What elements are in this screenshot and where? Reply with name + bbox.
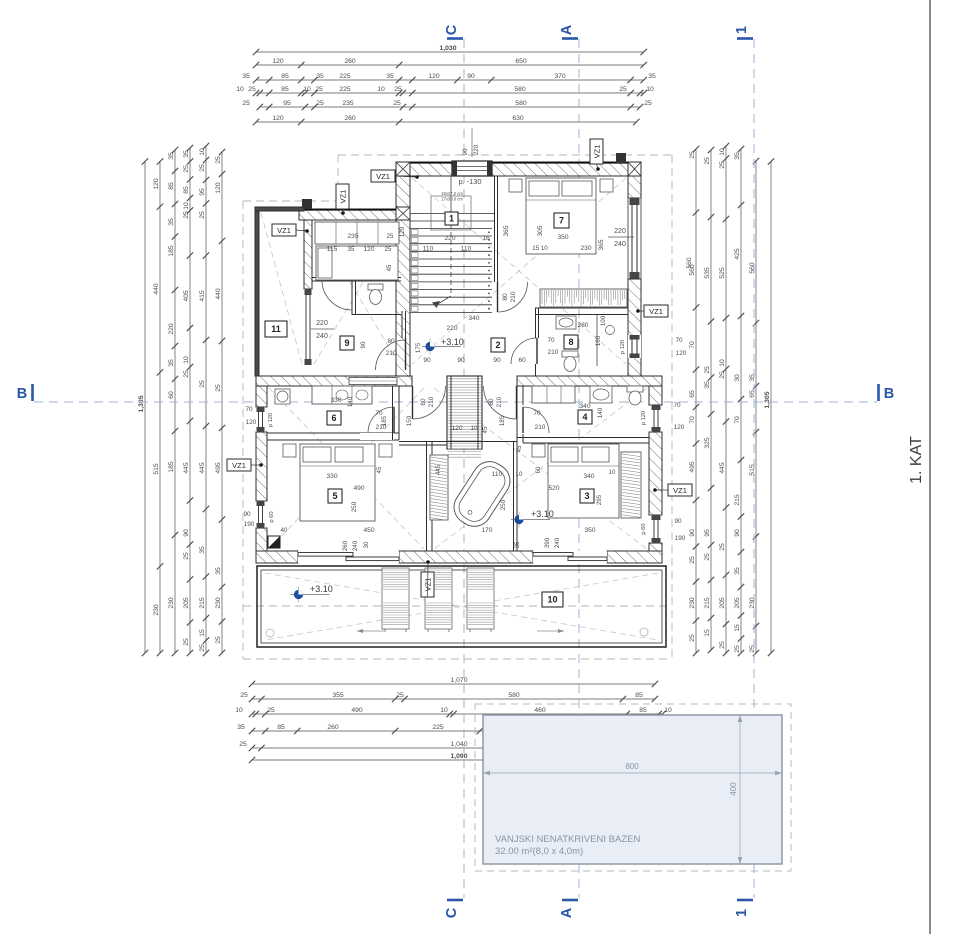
svg-text:495: 495: [689, 461, 696, 473]
svg-text:11: 11: [271, 324, 281, 334]
svg-text:120: 120: [215, 182, 222, 194]
svg-text:95: 95: [283, 100, 291, 107]
svg-text:440: 440: [215, 288, 222, 300]
svg-text:25: 25: [734, 645, 741, 653]
svg-text:215: 215: [199, 597, 206, 609]
svg-text:235: 235: [342, 100, 354, 107]
svg-text:225: 225: [432, 724, 444, 731]
svg-text:240: 240: [554, 537, 561, 548]
svg-text:185: 185: [381, 415, 388, 426]
svg-text:220: 220: [446, 325, 457, 332]
svg-text:210: 210: [496, 396, 503, 407]
svg-text:B: B: [17, 386, 27, 402]
svg-text:10: 10: [516, 471, 523, 478]
svg-text:90: 90: [689, 529, 696, 537]
svg-text:25: 25: [719, 641, 726, 649]
svg-text:VZ1: VZ1: [593, 145, 602, 159]
svg-text:25: 25: [183, 552, 190, 560]
svg-text:35: 35: [168, 218, 175, 226]
svg-text:10: 10: [471, 425, 478, 432]
svg-text:445: 445: [183, 462, 190, 474]
svg-text:630: 630: [512, 115, 524, 122]
svg-text:185: 185: [168, 461, 175, 473]
svg-text:60: 60: [168, 391, 175, 399]
svg-text:90: 90: [457, 357, 465, 364]
svg-text:205: 205: [183, 597, 190, 609]
svg-text:60: 60: [518, 357, 526, 364]
svg-text:85: 85: [281, 73, 289, 80]
svg-text:445: 445: [435, 464, 442, 475]
svg-text:4: 4: [582, 412, 587, 422]
svg-text:560: 560: [749, 262, 756, 274]
svg-text:A: A: [559, 24, 575, 35]
svg-text:25: 25: [385, 246, 392, 253]
svg-text:85: 85: [281, 86, 289, 93]
svg-text:225: 225: [339, 73, 351, 80]
svg-text:10: 10: [303, 86, 311, 93]
svg-text:120: 120: [246, 419, 257, 426]
svg-text:260: 260: [342, 540, 349, 551]
svg-text:160: 160: [595, 335, 602, 346]
svg-text:5: 5: [332, 491, 337, 501]
svg-text:25: 25: [183, 370, 190, 378]
svg-text:70: 70: [689, 341, 696, 349]
svg-text:25: 25: [267, 707, 275, 714]
svg-text:90: 90: [493, 357, 501, 364]
svg-text:1: 1: [449, 214, 454, 224]
svg-text:340: 340: [468, 315, 479, 322]
svg-text:8: 8: [568, 337, 573, 347]
svg-text:120: 120: [399, 226, 406, 237]
svg-text:1,305: 1,305: [764, 391, 771, 408]
svg-text:10: 10: [719, 148, 726, 156]
svg-text:120: 120: [272, 115, 284, 122]
svg-text:10: 10: [235, 707, 243, 714]
svg-text:1. KAT: 1. KAT: [908, 436, 925, 484]
svg-text:VZ1: VZ1: [649, 307, 663, 316]
svg-text:25: 25: [719, 371, 726, 379]
svg-text:305: 305: [537, 225, 544, 236]
svg-text:10: 10: [609, 470, 616, 476]
svg-text:17x30,0 cm: 17x30,0 cm: [441, 197, 463, 202]
svg-text:1,070: 1,070: [450, 677, 467, 684]
svg-text:70: 70: [673, 402, 681, 409]
svg-text:210: 210: [386, 350, 397, 357]
svg-text:80: 80: [387, 338, 395, 345]
svg-text:25: 25: [316, 100, 324, 107]
svg-text:25: 25: [199, 380, 206, 388]
svg-text:230: 230: [215, 597, 222, 609]
svg-text:25: 25: [248, 86, 256, 93]
svg-text:10: 10: [440, 707, 448, 714]
svg-text:35: 35: [199, 546, 206, 554]
svg-text:+3.10: +3.10: [310, 584, 333, 594]
svg-text:120: 120: [674, 424, 685, 431]
svg-text:215: 215: [734, 494, 741, 506]
svg-text:110: 110: [461, 246, 472, 253]
svg-text:35: 35: [237, 724, 245, 731]
svg-text:415: 415: [199, 290, 206, 302]
svg-text:9: 9: [344, 338, 349, 348]
svg-text:25: 25: [719, 161, 726, 169]
svg-text:80: 80: [420, 398, 427, 406]
svg-text:VZ1: VZ1: [339, 190, 348, 204]
svg-text:+3.10: +3.10: [531, 509, 554, 519]
svg-text:60: 60: [536, 466, 542, 473]
svg-text:260: 260: [344, 115, 356, 122]
svg-text:85: 85: [168, 182, 175, 190]
svg-text:1,090: 1,090: [450, 753, 467, 760]
svg-text:580: 580: [515, 100, 527, 107]
svg-text:10: 10: [547, 595, 557, 605]
svg-text:250: 250: [351, 501, 358, 512]
svg-text:25: 25: [199, 164, 206, 172]
svg-text:VZ1: VZ1: [673, 486, 687, 495]
svg-text:445: 445: [199, 462, 206, 474]
svg-text:235: 235: [347, 233, 358, 240]
svg-text:230: 230: [580, 245, 591, 252]
svg-text:150: 150: [406, 415, 413, 426]
svg-text:115: 115: [327, 246, 338, 253]
svg-text:90: 90: [734, 529, 741, 537]
svg-text:35: 35: [215, 567, 222, 575]
svg-text:25: 25: [215, 636, 222, 644]
svg-text:70: 70: [675, 337, 683, 344]
svg-text:25: 25: [619, 86, 627, 93]
svg-text:215: 215: [704, 597, 711, 609]
svg-text:70: 70: [245, 406, 253, 413]
svg-text:6: 6: [331, 413, 336, 423]
svg-text:25: 25: [689, 634, 696, 642]
svg-text:405: 405: [183, 290, 190, 302]
svg-text:70: 70: [533, 410, 541, 417]
svg-text:10: 10: [646, 86, 654, 93]
svg-text:25: 25: [199, 644, 206, 652]
svg-text:425: 425: [734, 248, 741, 260]
svg-text:35: 35: [168, 152, 175, 160]
svg-text:295: 295: [596, 494, 603, 505]
svg-text:340: 340: [583, 473, 594, 480]
svg-text:490: 490: [353, 485, 364, 492]
svg-text:280: 280: [578, 322, 589, 329]
svg-text:10: 10: [183, 202, 190, 210]
svg-text:80: 80: [488, 398, 495, 406]
svg-text:185: 185: [499, 415, 506, 426]
svg-text:120: 120: [451, 425, 462, 432]
svg-text:220: 220: [614, 228, 626, 235]
svg-text:p 60: p 60: [269, 511, 275, 522]
svg-text:90: 90: [183, 529, 190, 537]
svg-text:3: 3: [584, 491, 589, 501]
svg-text:350: 350: [584, 527, 595, 534]
svg-text:800: 800: [625, 762, 639, 771]
svg-text:25: 25: [215, 384, 222, 392]
svg-text:40: 40: [281, 527, 288, 534]
svg-text:1,040: 1,040: [450, 741, 467, 748]
svg-text:220: 220: [444, 235, 455, 242]
svg-text:25: 25: [704, 553, 711, 561]
svg-text:90: 90: [674, 518, 682, 525]
svg-text:230: 230: [168, 597, 175, 609]
svg-text:225: 225: [339, 86, 351, 93]
svg-text:140: 140: [347, 396, 354, 407]
svg-text:460: 460: [534, 707, 546, 714]
svg-text:120: 120: [363, 246, 374, 253]
svg-text:210: 210: [548, 349, 559, 356]
svg-text:45: 45: [376, 466, 383, 473]
svg-text:7: 7: [559, 216, 564, 226]
svg-text:p. -130: p. -130: [458, 177, 481, 186]
svg-text:65: 65: [689, 390, 696, 398]
svg-text:25: 25: [396, 692, 404, 699]
svg-text:100: 100: [600, 315, 607, 326]
svg-text:220: 220: [168, 323, 175, 335]
svg-text:365: 365: [598, 239, 605, 250]
svg-text:15: 15: [704, 629, 711, 637]
svg-text:210: 210: [428, 396, 435, 407]
svg-text:120: 120: [676, 350, 687, 357]
svg-text:350: 350: [557, 234, 568, 241]
svg-text:30: 30: [734, 374, 741, 382]
svg-text:240: 240: [316, 333, 328, 340]
svg-text:p 120: p 120: [620, 340, 626, 355]
svg-text:370: 370: [554, 73, 566, 80]
svg-text:p 60: p 60: [641, 523, 647, 534]
svg-text:495: 495: [215, 462, 222, 474]
svg-text:25: 25: [315, 86, 323, 93]
svg-text:110: 110: [492, 471, 503, 478]
svg-text:560: 560: [686, 257, 693, 268]
svg-text:10: 10: [377, 86, 385, 93]
svg-text:10: 10: [664, 707, 672, 714]
svg-text:525: 525: [719, 267, 726, 279]
svg-text:25: 25: [749, 645, 756, 653]
svg-text:240: 240: [614, 241, 626, 248]
svg-text:C: C: [444, 907, 460, 918]
svg-text:35: 35: [515, 541, 521, 548]
svg-text:250: 250: [500, 499, 507, 510]
svg-text:C: C: [444, 24, 460, 35]
svg-text:340: 340: [579, 403, 590, 410]
svg-text:520: 520: [548, 485, 559, 492]
svg-text:80: 80: [502, 293, 509, 301]
svg-text:110: 110: [423, 246, 434, 253]
svg-text:185: 185: [168, 245, 175, 257]
svg-text:90: 90: [462, 148, 469, 155]
svg-text:85: 85: [277, 724, 285, 731]
svg-text:10: 10: [183, 356, 190, 364]
svg-text:240: 240: [352, 540, 359, 551]
svg-text:230: 230: [153, 604, 160, 616]
svg-text:90: 90: [360, 341, 367, 348]
svg-text:260: 260: [344, 58, 356, 65]
svg-text:120: 120: [272, 58, 284, 65]
svg-text:35: 35: [242, 73, 250, 80]
svg-text:440: 440: [153, 283, 160, 295]
svg-text:25: 25: [704, 366, 711, 374]
svg-text:580: 580: [508, 692, 520, 699]
svg-text:35: 35: [348, 246, 355, 253]
svg-text:330: 330: [326, 473, 337, 480]
svg-text:190: 190: [675, 535, 686, 542]
svg-text:85: 85: [183, 186, 190, 194]
svg-text:90: 90: [243, 511, 251, 518]
svg-text:140: 140: [597, 407, 604, 418]
svg-text:35: 35: [749, 374, 756, 382]
svg-text:230: 230: [749, 597, 756, 609]
svg-text:330: 330: [330, 397, 341, 404]
svg-text:230: 230: [689, 597, 696, 609]
svg-text:1: 1: [734, 26, 750, 34]
svg-text:365: 365: [503, 225, 510, 236]
svg-text:15 10: 15 10: [532, 245, 548, 252]
svg-text:p 120: p 120: [268, 413, 274, 428]
svg-text:+3.10: +3.10: [441, 337, 464, 347]
svg-text:70: 70: [734, 416, 741, 424]
svg-text:35: 35: [734, 567, 741, 575]
svg-text:35: 35: [183, 150, 190, 158]
svg-text:70: 70: [689, 416, 696, 424]
svg-text:515: 515: [153, 463, 160, 475]
svg-text:260: 260: [327, 724, 339, 731]
svg-text:45: 45: [387, 264, 393, 271]
svg-text:205: 205: [734, 597, 741, 609]
svg-text:220: 220: [473, 144, 480, 155]
svg-text:35: 35: [316, 73, 324, 80]
svg-text:19x17,2 cm: 19x17,2 cm: [441, 191, 463, 196]
svg-text:390: 390: [544, 537, 551, 548]
svg-text:1: 1: [734, 909, 750, 917]
svg-text:25: 25: [393, 100, 401, 107]
svg-text:25: 25: [394, 86, 402, 93]
svg-text:25: 25: [215, 156, 222, 164]
svg-text:B: B: [884, 386, 894, 402]
svg-text:25: 25: [242, 100, 250, 107]
svg-text:325: 325: [704, 437, 711, 449]
svg-text:1,030: 1,030: [439, 45, 456, 52]
svg-text:25: 25: [240, 692, 248, 699]
svg-text:210: 210: [535, 424, 546, 431]
svg-text:450: 450: [363, 527, 374, 534]
svg-text:45: 45: [517, 445, 523, 452]
svg-text:65: 65: [749, 390, 756, 398]
svg-text:25: 25: [719, 543, 726, 551]
svg-text:p 120: p 120: [641, 411, 647, 426]
svg-text:VZ1: VZ1: [232, 461, 246, 470]
svg-text:25: 25: [704, 157, 711, 165]
svg-text:25: 25: [183, 638, 190, 646]
svg-text:15: 15: [734, 624, 741, 632]
svg-text:90: 90: [423, 357, 431, 364]
svg-text:30: 30: [364, 541, 370, 548]
svg-text:16: 16: [482, 235, 490, 242]
svg-text:490: 490: [351, 707, 363, 714]
svg-text:95: 95: [704, 529, 711, 537]
svg-text:190: 190: [244, 521, 255, 528]
svg-text:70: 70: [547, 337, 555, 344]
svg-text:515: 515: [749, 464, 756, 476]
svg-text:25: 25: [199, 211, 206, 219]
svg-text:1,305: 1,305: [138, 395, 145, 412]
svg-text:25: 25: [387, 233, 394, 240]
svg-text:535: 535: [704, 267, 711, 279]
svg-text:95: 95: [199, 188, 206, 196]
svg-text:25: 25: [183, 165, 190, 173]
svg-text:120: 120: [428, 73, 440, 80]
svg-text:15: 15: [199, 629, 206, 637]
svg-text:35: 35: [648, 73, 656, 80]
svg-text:VZ1: VZ1: [376, 172, 390, 181]
svg-text:220: 220: [316, 320, 328, 327]
svg-text:VZ1: VZ1: [277, 226, 291, 235]
svg-text:35: 35: [168, 359, 175, 367]
svg-text:85: 85: [635, 692, 643, 699]
svg-text:205: 205: [719, 597, 726, 609]
svg-text:175: 175: [415, 342, 422, 353]
svg-text:90: 90: [467, 73, 475, 80]
svg-text:10: 10: [719, 359, 726, 367]
svg-text:10: 10: [199, 148, 206, 156]
svg-text:25: 25: [644, 100, 652, 107]
svg-text:45: 45: [482, 426, 489, 433]
svg-text:32.00 m²(8,0 x 4,0m): 32.00 m²(8,0 x 4,0m): [495, 846, 583, 857]
svg-text:10: 10: [236, 86, 244, 93]
svg-text:170: 170: [481, 527, 492, 534]
svg-text:580: 580: [514, 86, 526, 93]
svg-text:400: 400: [729, 782, 738, 796]
svg-text:25: 25: [239, 741, 247, 748]
svg-text:35: 35: [704, 381, 711, 389]
svg-text:VANJSKI NENATKRIVENI BAZEN: VANJSKI NENATKRIVENI BAZEN: [495, 834, 640, 845]
svg-text:445: 445: [719, 462, 726, 474]
svg-text:650: 650: [515, 58, 527, 65]
svg-text:210: 210: [510, 291, 517, 302]
svg-text:85: 85: [639, 707, 647, 714]
svg-text:355: 355: [332, 692, 344, 699]
svg-text:2: 2: [495, 340, 500, 350]
svg-text:25: 25: [689, 151, 696, 159]
svg-text:120: 120: [153, 178, 160, 190]
svg-text:A: A: [559, 907, 575, 918]
svg-text:35: 35: [386, 73, 394, 80]
svg-text:25: 25: [689, 556, 696, 564]
svg-text:35: 35: [734, 152, 741, 160]
svg-text:25: 25: [183, 211, 190, 219]
